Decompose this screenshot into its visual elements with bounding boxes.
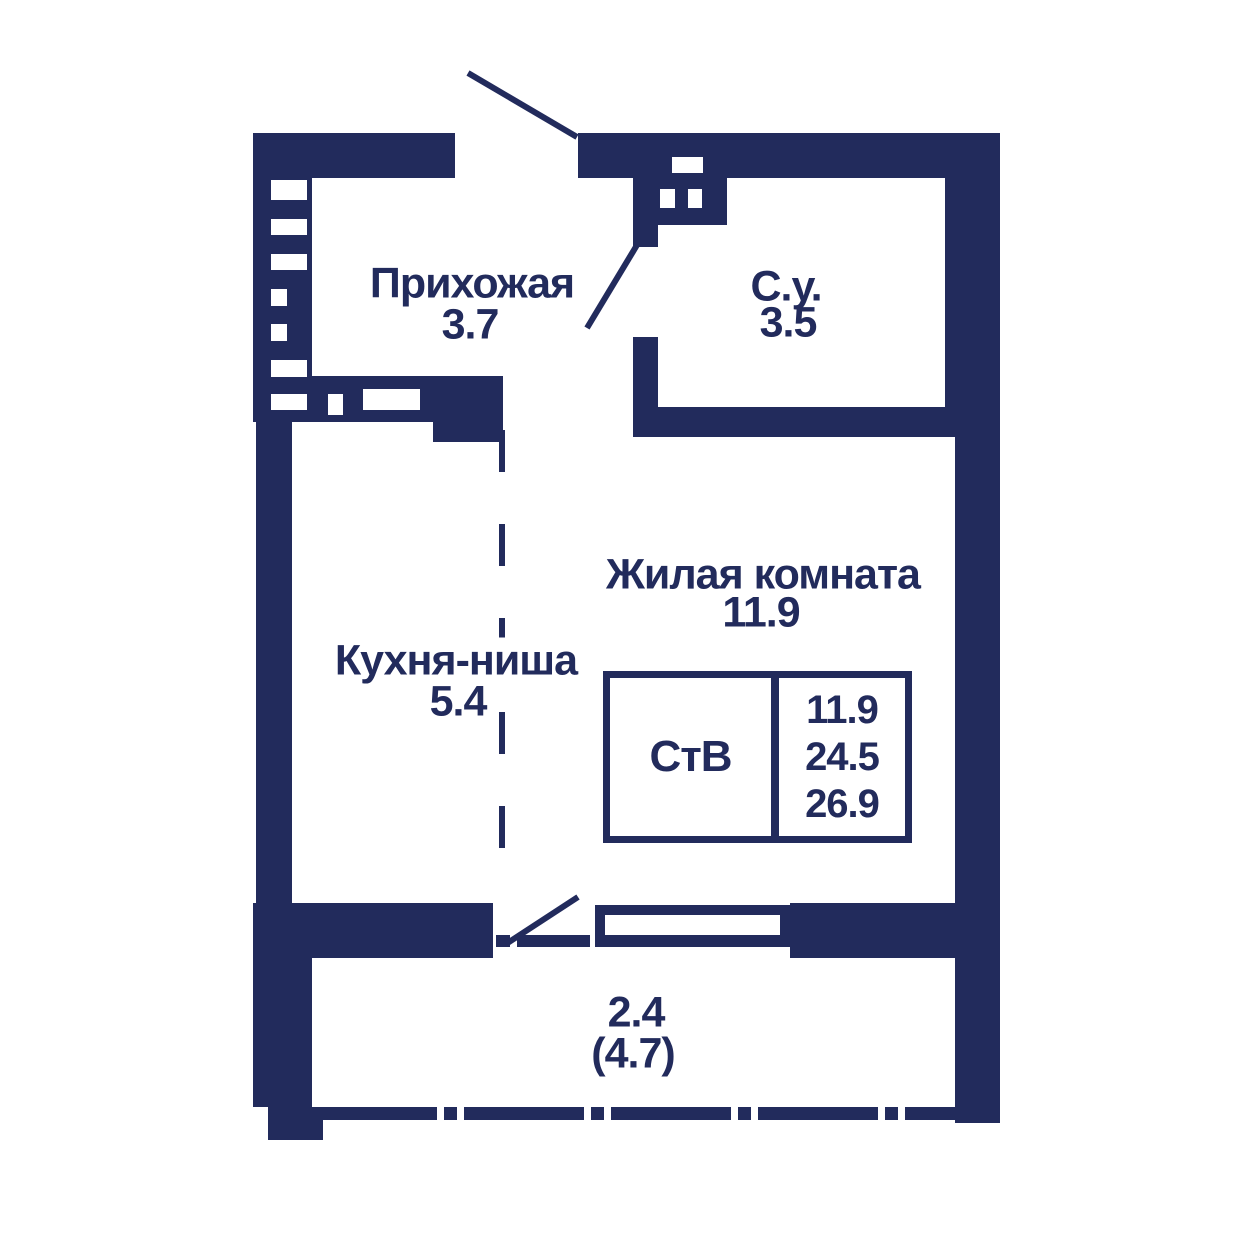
balcony-area-total: (4.7) <box>591 1033 674 1076</box>
area-value: 24.5 <box>805 734 879 781</box>
balcony-door-swing <box>506 897 578 944</box>
bathroom-door-swing <box>587 245 637 328</box>
apartment-type-label: СтВ <box>610 678 771 836</box>
room-area-kitchen: 5.4 <box>430 681 487 724</box>
room-area-bathroom: 3.5 <box>760 302 817 345</box>
entry-door-swing <box>468 73 577 137</box>
total-area-value: 26.9 <box>805 781 879 828</box>
living-area-value: 11.9 <box>806 687 878 734</box>
floor-plan: Прихожая 3.7 С.у. 3.5 Жилая комната 11.9… <box>0 0 1248 1248</box>
apartment-areas: 11.9 24.5 26.9 <box>771 678 905 836</box>
room-area-living-room: 11.9 <box>722 592 799 635</box>
balcony-area: 2.4 <box>608 992 665 1035</box>
room-label-hallway: Прихожая <box>370 263 574 306</box>
room-area-hallway: 3.7 <box>442 304 499 347</box>
info-box: СтВ 11.9 24.5 26.9 <box>603 671 912 843</box>
